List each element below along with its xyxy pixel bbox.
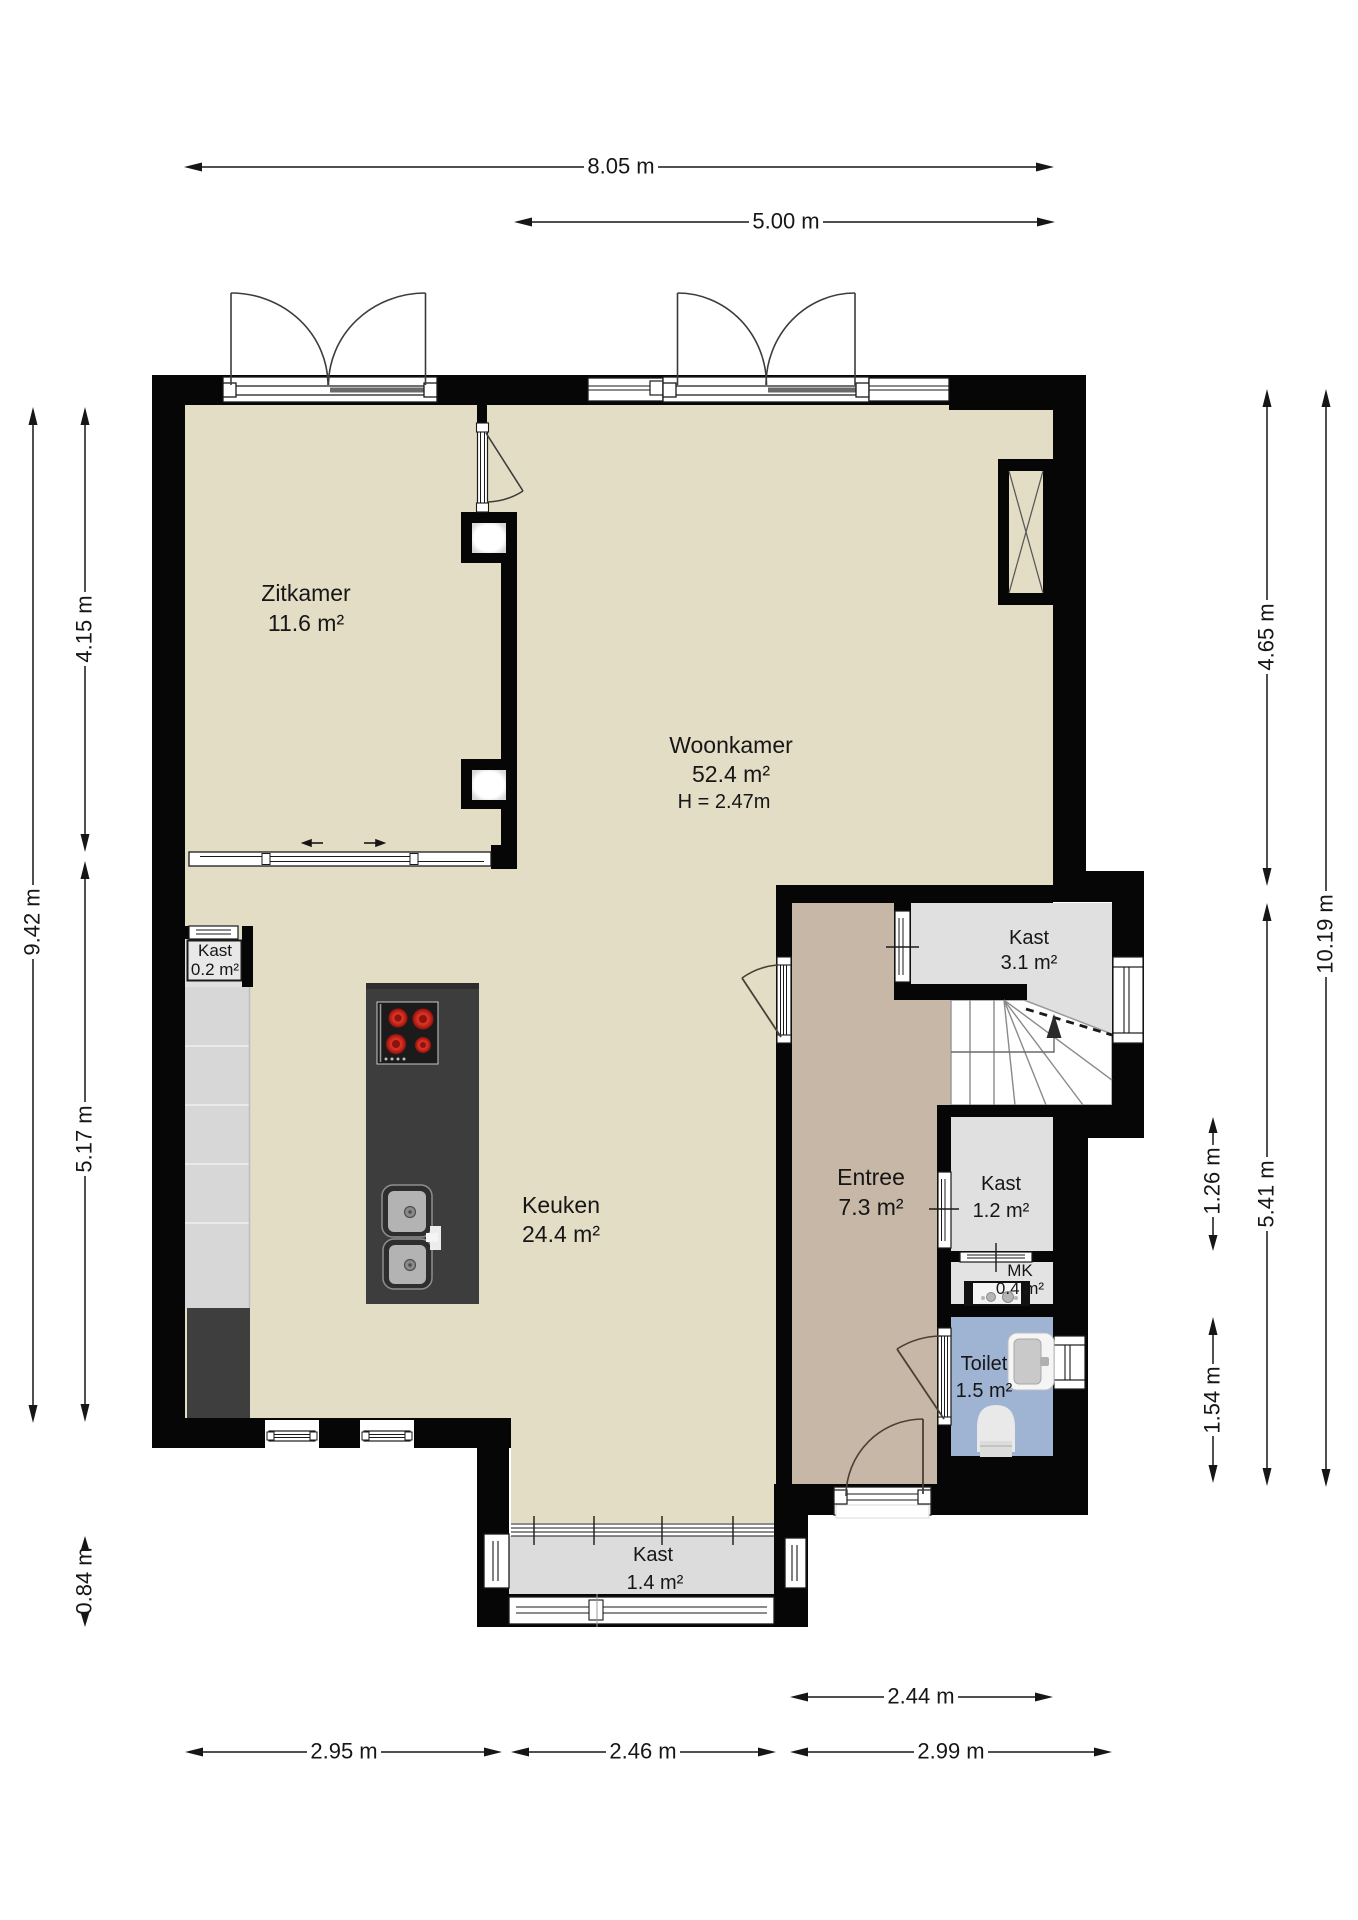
svg-text:5.41 m: 5.41 m bbox=[1254, 1160, 1279, 1227]
svg-text:Woonkamer: Woonkamer bbox=[669, 732, 793, 758]
svg-text:3.1 m²: 3.1 m² bbox=[1001, 952, 1058, 974]
svg-text:1.26 m: 1.26 m bbox=[1200, 1147, 1225, 1214]
svg-text:Entree: Entree bbox=[837, 1164, 905, 1190]
svg-text:MK: MK bbox=[1007, 1261, 1033, 1280]
svg-text:2.95 m: 2.95 m bbox=[310, 1739, 377, 1764]
svg-text:4.65 m: 4.65 m bbox=[1254, 603, 1279, 670]
svg-text:2.46 m: 2.46 m bbox=[609, 1739, 676, 1764]
svg-text:2.99 m: 2.99 m bbox=[917, 1739, 984, 1764]
svg-text:5.00 m: 5.00 m bbox=[752, 209, 819, 234]
svg-text:1.4 m²: 1.4 m² bbox=[627, 1572, 684, 1594]
svg-text:7.3 m²: 7.3 m² bbox=[838, 1194, 904, 1220]
svg-text:1.5 m²: 1.5 m² bbox=[956, 1380, 1013, 1402]
svg-text:Kast: Kast bbox=[981, 1173, 1021, 1195]
svg-text:24.4 m²: 24.4 m² bbox=[522, 1221, 600, 1247]
svg-text:8.05 m: 8.05 m bbox=[587, 154, 654, 179]
svg-text:1.2 m²: 1.2 m² bbox=[973, 1200, 1030, 1222]
svg-text:11.6 m²: 11.6 m² bbox=[268, 610, 345, 636]
svg-text:Keuken: Keuken bbox=[522, 1192, 600, 1218]
svg-text:5.17 m: 5.17 m bbox=[72, 1105, 97, 1172]
svg-text:0.2 m²: 0.2 m² bbox=[191, 960, 240, 979]
svg-text:1.54 m: 1.54 m bbox=[1200, 1366, 1225, 1433]
svg-text:0.84 m: 0.84 m bbox=[72, 1547, 97, 1614]
svg-text:H = 2.47m: H = 2.47m bbox=[678, 791, 771, 813]
svg-text:Kast: Kast bbox=[633, 1544, 673, 1566]
svg-text:Zitkamer: Zitkamer bbox=[261, 580, 351, 606]
svg-text:4.15 m: 4.15 m bbox=[72, 595, 97, 662]
svg-text:10.19 m: 10.19 m bbox=[1313, 894, 1338, 974]
svg-text:52.4 m²: 52.4 m² bbox=[692, 761, 770, 787]
svg-text:0.4 m²: 0.4 m² bbox=[996, 1279, 1045, 1298]
svg-text:9.42 m: 9.42 m bbox=[20, 888, 45, 955]
svg-text:Toilet: Toilet bbox=[961, 1353, 1008, 1375]
svg-text:2.44 m: 2.44 m bbox=[887, 1684, 954, 1709]
svg-text:Kast: Kast bbox=[1009, 927, 1049, 949]
svg-text:Kast: Kast bbox=[198, 941, 232, 960]
